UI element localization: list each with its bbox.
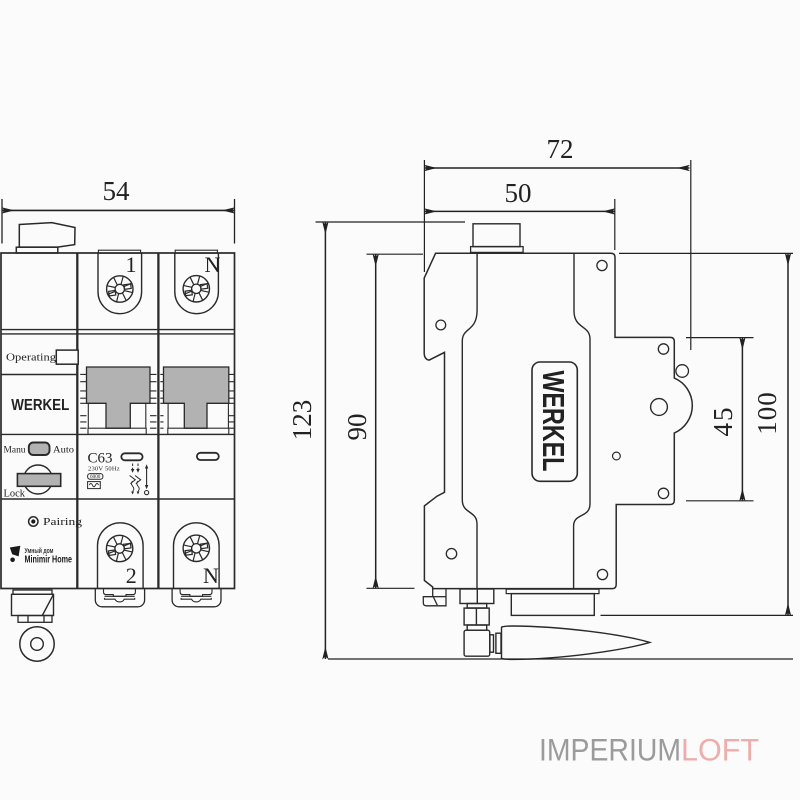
svg-text:54: 54 — [103, 176, 131, 206]
svg-text:6000: 6000 — [90, 474, 101, 480]
svg-text:IMPERIUM: IMPERIUM — [539, 732, 681, 768]
svg-text:N: N — [205, 252, 221, 277]
svg-text:WERKEL: WERKEL — [536, 371, 571, 472]
svg-text:100: 100 — [752, 391, 782, 435]
svg-text:72: 72 — [547, 134, 574, 164]
svg-text:Pairing: Pairing — [43, 517, 82, 528]
svg-text:Auto: Auto — [53, 446, 74, 456]
svg-text:C63: C63 — [88, 451, 113, 467]
svg-text:N: N — [203, 563, 219, 588]
svg-text:90: 90 — [342, 414, 372, 441]
svg-text:2: 2 — [126, 563, 137, 588]
svg-text:Operating: Operating — [6, 353, 56, 364]
svg-text:50: 50 — [505, 178, 532, 208]
svg-text:Minimir Home: Minimir Home — [25, 555, 73, 566]
svg-text:Lock: Lock — [4, 489, 26, 500]
svg-text:230V 50Hz: 230V 50Hz — [88, 466, 120, 473]
svg-text:1: 1 — [126, 252, 137, 277]
svg-text:45: 45 — [708, 406, 738, 437]
svg-text:123: 123 — [287, 400, 317, 441]
svg-text:Manu: Manu — [4, 446, 26, 456]
svg-text:WERKEL: WERKEL — [11, 397, 69, 414]
svg-text:LOFT: LOFT — [681, 732, 759, 768]
